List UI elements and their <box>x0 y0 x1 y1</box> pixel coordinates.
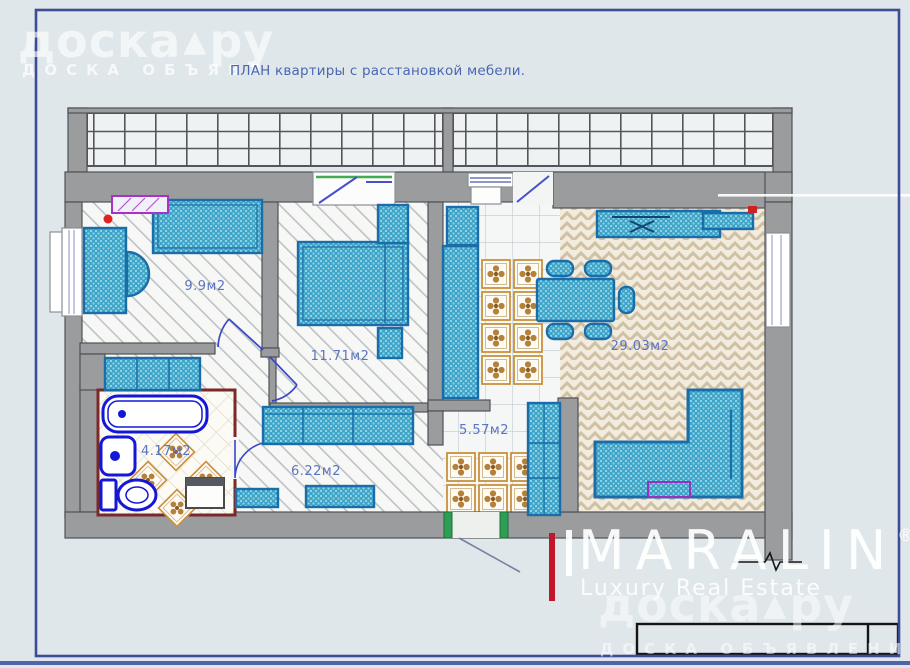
wall-left-lower <box>80 385 98 512</box>
wardrobe-small-bedroom <box>105 358 200 390</box>
dining-chair <box>585 324 611 339</box>
dining-chair <box>547 324 573 339</box>
toilet <box>101 480 156 510</box>
dining-table <box>537 279 614 321</box>
bed-small-bedroom <box>153 200 262 253</box>
hallway-cabinet <box>306 486 374 507</box>
nightstand-bottom <box>378 328 402 358</box>
dining-chair <box>585 261 611 276</box>
window-right <box>766 233 790 327</box>
fridge <box>447 207 478 245</box>
kitchen-balcony-door <box>513 172 553 205</box>
bed-bedroom <box>298 242 408 325</box>
room-label-small-bedroom: 9.9м2 <box>184 279 225 294</box>
room-label-hallway: 6.22м2 <box>291 464 341 479</box>
dining-chair <box>619 287 634 313</box>
room-label-bathroom: 4.17м2 <box>141 444 191 459</box>
wall-top-living <box>553 172 765 208</box>
room-label-living: 29.03м2 <box>611 339 670 354</box>
hallway-bench <box>236 489 278 507</box>
wall-shelf <box>112 196 168 213</box>
red-square-marker <box>748 206 757 213</box>
red-line-marker <box>549 533 555 601</box>
window-left <box>50 228 82 316</box>
room-label-corridor: 5.57м2 <box>459 423 509 438</box>
wardrobe-hallway <box>263 407 413 444</box>
floor-plan: 9.9м2 11.71м2 29.03м2 4.17м2 6.22м2 5.57… <box>0 0 910 668</box>
title-block <box>637 624 898 654</box>
balcony-door <box>313 172 395 205</box>
wall-between-bedrooms <box>262 202 278 348</box>
wall-bedroom-kitchen <box>428 202 443 412</box>
corridor-tall-cabinet <box>528 403 560 515</box>
bathtub <box>103 396 207 432</box>
white-line-artifact <box>718 194 910 197</box>
tv-unit <box>597 211 720 237</box>
desk <box>84 228 126 313</box>
red-dot-marker <box>104 215 113 224</box>
sideboard <box>703 213 753 229</box>
kitchen-counter <box>443 246 478 398</box>
sofa-cushion <box>648 482 690 497</box>
washing-machine <box>186 478 224 508</box>
nightstand-top <box>378 205 408 243</box>
page: 9.9м2 11.71м2 29.03м2 4.17м2 6.22м2 5.57… <box>0 0 910 668</box>
page-edge-line <box>0 661 910 665</box>
room-label-bedroom: 11.71м2 <box>311 349 370 364</box>
wall-bedroom-small-south <box>80 343 215 354</box>
dining-chair <box>547 261 573 276</box>
sink <box>101 437 135 475</box>
